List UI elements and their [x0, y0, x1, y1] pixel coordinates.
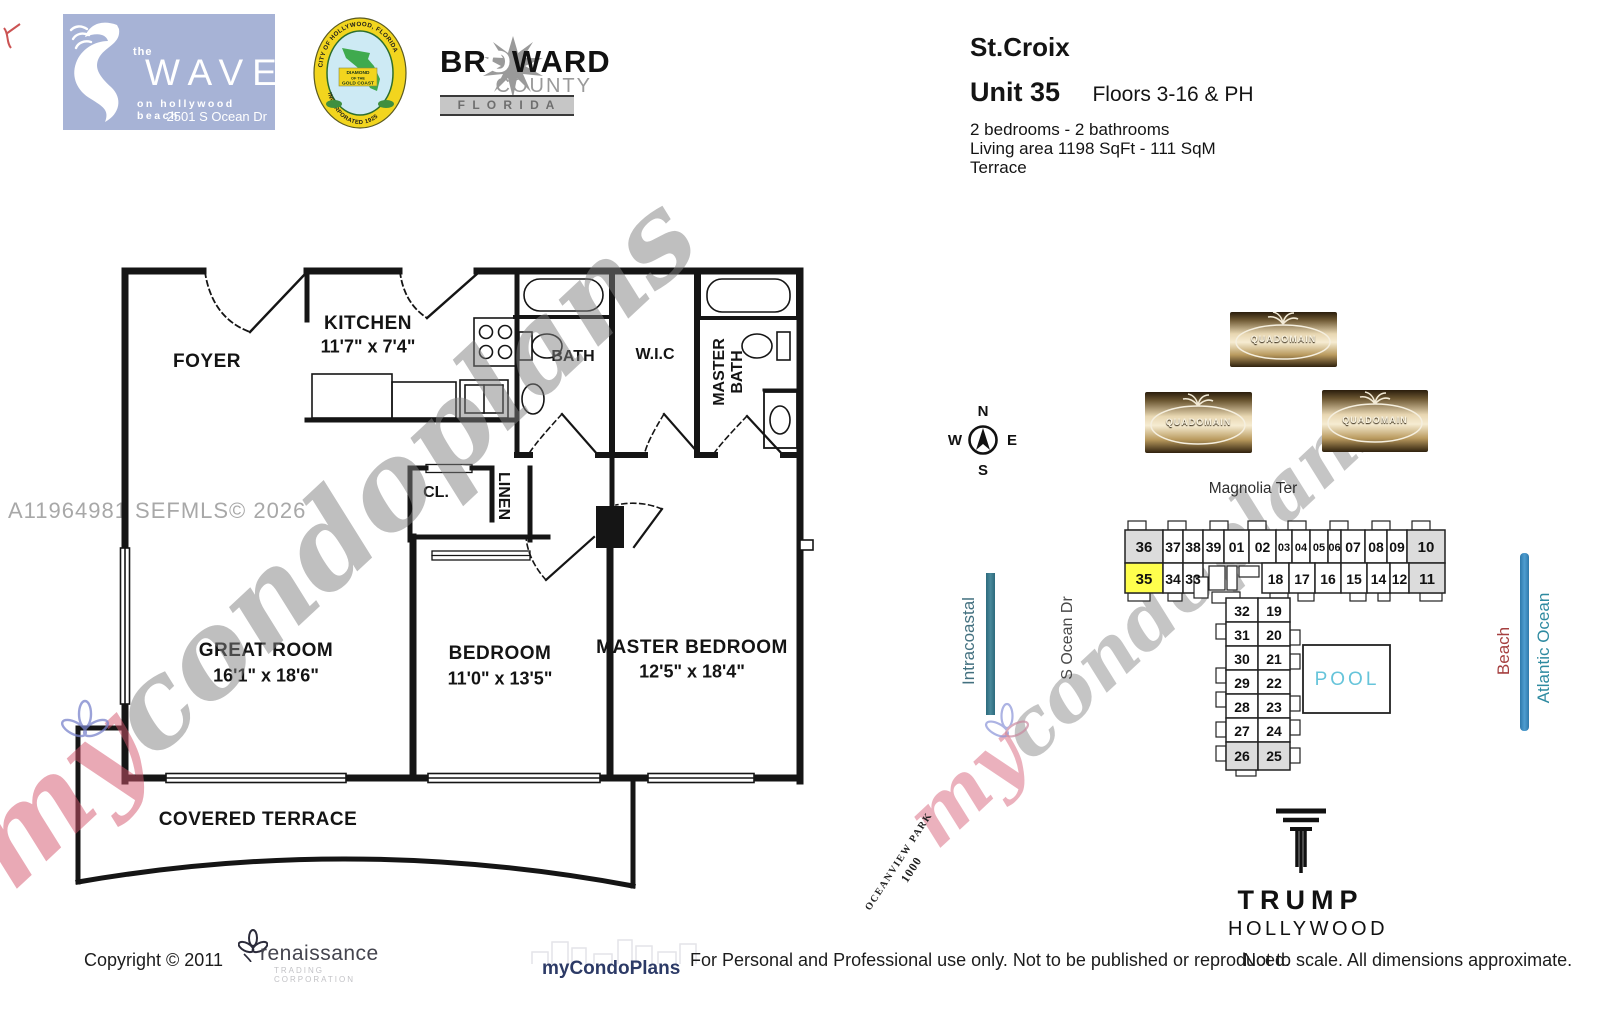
floorplan-page: the WAVE on hollywood beach 2501 S Ocean…: [0, 0, 1600, 1023]
room-master-bedroom-dim: 12'5" x 18'4": [639, 662, 745, 683]
unit-number: Unit 35: [970, 77, 1060, 108]
site-map: 36 37 38 39 01 02 03 04 05 06 07 08 09 1…: [1090, 455, 1520, 785]
wave-logo: the WAVE on hollywood beach 2501 S Ocean…: [63, 14, 275, 130]
corner-mark: [0, 16, 34, 52]
unit-12: 12: [1392, 571, 1408, 587]
unit-15: 15: [1346, 571, 1362, 587]
wave-name: WAVE: [145, 52, 286, 94]
renaissance-name: renaissance: [260, 942, 379, 966]
terrace-walls: [78, 728, 633, 886]
unit-19: 19: [1266, 603, 1282, 619]
unit-10: 10: [1418, 539, 1435, 556]
label-s-ocean-dr: S Ocean Dr: [1059, 596, 1077, 680]
unit-38: 38: [1185, 539, 1201, 555]
trump-t-icon: [1273, 806, 1329, 876]
room-bedroom: BEDROOM: [449, 643, 552, 665]
compass: N W E S: [938, 398, 1030, 486]
unit-05: 05: [1313, 542, 1325, 554]
room-kitchen-dim: 11'7" x 7'4": [321, 337, 416, 358]
quadomain-text-1: QUADOMAIN: [1230, 334, 1337, 344]
unit-01: 01: [1229, 539, 1245, 555]
atlantic-bar: [1520, 553, 1529, 731]
seal-ribbon-1: DIAMOND: [347, 70, 370, 76]
stove-burners: [480, 326, 512, 359]
trefoil-icon: [60, 696, 110, 750]
bedroom-doors: [526, 503, 662, 580]
unit-16: 16: [1320, 571, 1336, 587]
room-wic: W.I.C: [635, 346, 674, 364]
quadomain-text-3: QUADOMAIN: [1322, 415, 1428, 425]
trump-hollywood-logo: TRUMP HOLLYWOOD: [1228, 806, 1373, 941]
quadomain-logo-3: QUADOMAIN: [1322, 390, 1428, 452]
label-intracoastal: Intracoastal: [959, 597, 979, 685]
unit-14: 14: [1371, 571, 1387, 587]
quadomain-logo-1: QUADOMAIN: [1230, 312, 1337, 367]
quadomain-text-2: QUADOMAIN: [1145, 417, 1252, 427]
unit-06: 06: [1328, 542, 1340, 554]
floors-range: Floors 3-16 & PH: [1092, 83, 1253, 107]
mycondoplans-logo: myCondoPlans: [528, 934, 708, 982]
footer-disclaimer-left: For Personal and Professional use only. …: [690, 950, 1290, 971]
compass-w: W: [948, 432, 963, 449]
seal-ribbon-3: GOLD COAST: [342, 81, 374, 87]
footer-copyright: Copyright © 2011: [84, 950, 223, 971]
unit-39: 39: [1206, 539, 1222, 555]
renaissance-sub: TRADING CORPORATION: [274, 966, 378, 984]
intracoastal-bar: [986, 573, 995, 715]
mycondoplans-name: myCondoPlans: [542, 958, 680, 980]
compass-e: E: [1007, 432, 1017, 449]
footer-disclaimer-right: Not to scale. All dimensions approximate…: [1243, 950, 1572, 971]
room-master-bedroom: MASTER BEDROOM: [596, 637, 788, 659]
unit-35: 35: [1136, 571, 1153, 588]
mermaid-icon: [65, 17, 143, 127]
unit-34: 34: [1165, 571, 1181, 587]
kitchen-walls: [307, 271, 517, 455]
label-beach: Beach: [1494, 627, 1514, 675]
unit-21: 21: [1266, 651, 1282, 667]
unit-27: 27: [1234, 723, 1250, 739]
unit-29: 29: [1234, 675, 1250, 691]
unit-02: 02: [1255, 539, 1271, 555]
room-master-bath-2: BATH: [729, 350, 747, 393]
unit-31: 31: [1234, 627, 1250, 643]
title-block: St.Croix Unit 35 Floors 3-16 & PH 2 bedr…: [970, 32, 1254, 177]
unit-36: 36: [1136, 539, 1153, 556]
unit-09: 09: [1389, 539, 1405, 555]
compass-n: N: [978, 403, 989, 420]
trump-city: HOLLYWOOD: [1228, 918, 1373, 941]
unit-24: 24: [1266, 723, 1282, 739]
bath-fixtures: [515, 273, 612, 414]
beds-baths: 2 bedrooms - 2 bathrooms: [970, 120, 1254, 139]
room-great-room: GREAT ROOM: [199, 640, 333, 662]
broward-county-logo: BROWARD COUNTY F L O R I D A: [440, 38, 730, 116]
trump-name: TRUMP: [1228, 885, 1373, 916]
hall-walls: [517, 414, 800, 455]
hollywood-seal: CITY OF HOLLYWOOD, FLORIDA INCORPORATED …: [312, 16, 408, 131]
room-kitchen: KITCHEN: [324, 313, 412, 335]
unit-20: 20: [1266, 627, 1282, 643]
living-area: Living area 1198 SqFt - 111 SqM: [970, 139, 1254, 158]
feature-terrace: Terrace: [970, 158, 1254, 177]
seal-ribbon-2: OF THE: [351, 77, 365, 81]
pool-label: POOL: [1315, 669, 1380, 690]
unit-30: 30: [1234, 651, 1250, 667]
unit-32: 32: [1234, 603, 1250, 619]
compass-s: S: [978, 462, 988, 479]
broward-pre: BR: [440, 44, 487, 79]
unit-23: 23: [1266, 699, 1282, 715]
unit-37: 37: [1165, 539, 1181, 555]
unit-07: 07: [1345, 539, 1361, 555]
room-foyer: FOYER: [173, 351, 241, 373]
unit-25: 25: [1266, 748, 1282, 764]
room-bath: BATH: [551, 348, 594, 366]
broward-o: O: [487, 44, 512, 79]
unit-04: 04: [1295, 542, 1308, 554]
unit-08: 08: [1368, 539, 1384, 555]
wave-address: 2501 S Ocean Dr: [167, 109, 267, 124]
unit-18: 18: [1268, 571, 1284, 587]
broward-state-bar: F L O R I D A: [440, 95, 574, 116]
room-bedroom-dim: 11'0" x 13'5": [448, 669, 553, 690]
renaissance-logo: renaissance TRADING CORPORATION: [238, 926, 378, 980]
room-covered-terrace: COVERED TERRACE: [159, 809, 358, 831]
unit-33: 33: [1185, 571, 1201, 587]
unit-28: 28: [1234, 699, 1250, 715]
room-closet: CL.: [423, 484, 449, 502]
unit-22: 22: [1266, 675, 1282, 691]
unit-17: 17: [1294, 571, 1310, 587]
compass-needle: [976, 428, 990, 450]
label-atlantic-ocean: Atlantic Ocean: [1534, 593, 1554, 704]
room-master-bath-1: MASTER: [711, 338, 729, 406]
room-great-room-dim: 16'1" x 18'6": [213, 666, 319, 687]
unit-26: 26: [1234, 748, 1250, 764]
unit-11: 11: [1419, 571, 1435, 588]
unit-03: 03: [1278, 542, 1290, 554]
room-linen: LINEN: [494, 472, 512, 520]
broward-post: WARD: [512, 44, 611, 79]
structural-column: [596, 506, 624, 548]
building-name: St.Croix: [970, 32, 1254, 63]
quadomain-logo-2: QUADOMAIN: [1145, 392, 1252, 453]
